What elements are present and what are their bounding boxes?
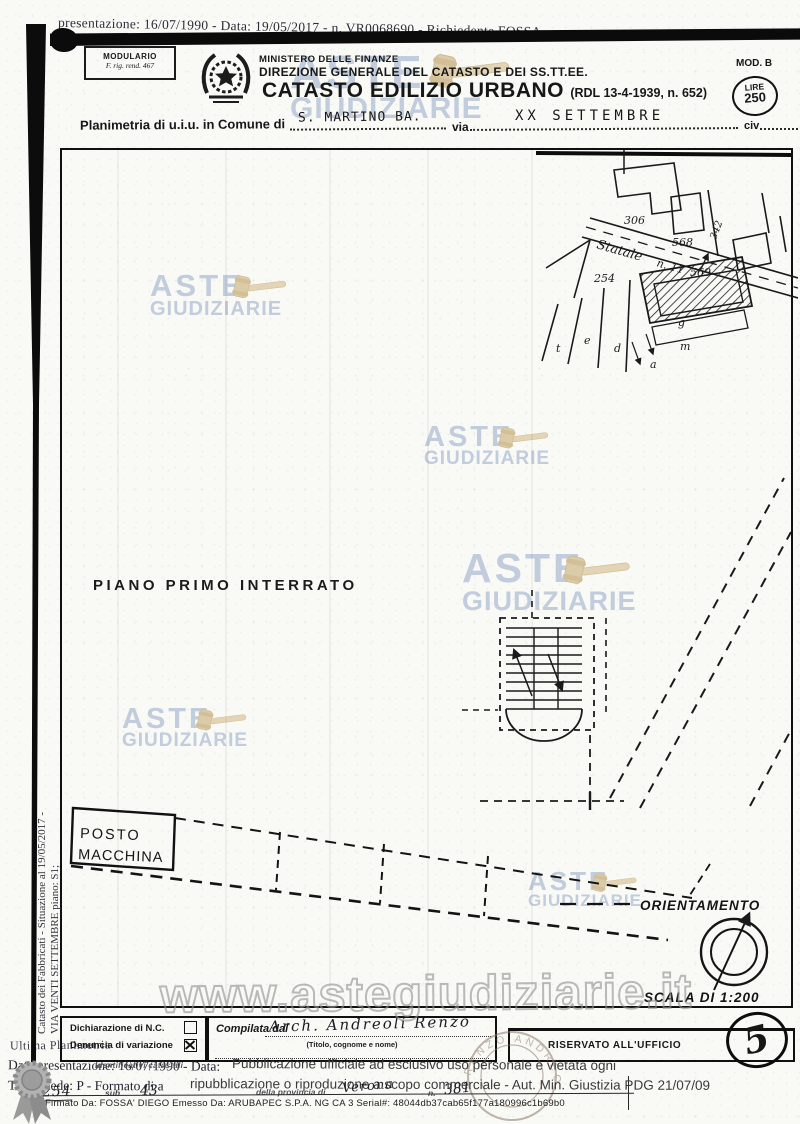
- letter-m: m: [680, 340, 690, 353]
- civ-dotted-line: [760, 114, 798, 130]
- footer-tick-right: [628, 1076, 629, 1110]
- footer-publication-line1: Pubblicazione ufficiale ad esclusivo uso…: [232, 1056, 616, 1073]
- footer-sub-value: 43: [140, 1083, 158, 1100]
- footer-province-label: della provincia di: [256, 1087, 325, 1097]
- parcel-306: 306: [624, 214, 645, 227]
- parcel-254: 254: [593, 272, 615, 285]
- parking-label-line1: POSTO: [80, 826, 141, 844]
- via-value: XX SETTEMBRE: [515, 108, 664, 124]
- title-suffix: (RDL 13-4-1939, n. 652): [570, 86, 707, 100]
- scanned-cadastral-document: presentazione: 16/07/1990 - Data: 19/05/…: [0, 0, 800, 1124]
- road-name-label: Statale: [595, 237, 644, 264]
- variation-label: Denuncia di variazione: [70, 1040, 173, 1051]
- mod-b-label: MOD. B: [736, 58, 772, 69]
- footer-sub-label: sub: [105, 1088, 120, 1098]
- letter-g: g: [678, 316, 685, 329]
- letter-e: e: [584, 334, 591, 347]
- modulario-line2: F. rig. rend. 467: [86, 61, 174, 70]
- footer-identificativi: Identificativi catastali: [95, 1061, 183, 1070]
- floor-label: PIANO PRIMO INTERRATO: [93, 577, 358, 594]
- frame-heavy-top-line: [536, 153, 791, 155]
- site-plan-inset: Statale n. 11 306 568 342 569 254 t e d …: [540, 156, 798, 398]
- letter-t: t: [556, 342, 561, 355]
- title-main: CATASTO EDILIZIO URBANO: [262, 79, 564, 102]
- watermark-url: www.astegiudiziarie.it: [160, 964, 693, 1025]
- vertical-line2: VIA VENTI SETTEMBRE piano: S1;: [49, 564, 62, 1034]
- parking-row-drawing: POSTO MACCHINA: [71, 808, 692, 940]
- parcel-569: 569: [690, 266, 711, 279]
- ministry-line1: MINISTERO DELLE FINANZE: [259, 54, 399, 65]
- declaration-label: Dichiarazione di N.C.: [70, 1023, 165, 1034]
- lire-value: 250: [734, 90, 777, 106]
- modulario-box: MODULARIO F. rig. rend. 467: [84, 46, 176, 80]
- scan-black-band-left: [24, 24, 48, 1064]
- staircase-drawing: [462, 590, 606, 741]
- document-title: CATASTO EDILIZIO URBANO (RDL 13-4-1939, …: [262, 79, 707, 103]
- footer-signature-line: Firmato Da: FOSSA' DIEGO Emesso Da: ARUB…: [45, 1098, 565, 1109]
- parcel-342: 342: [708, 219, 725, 241]
- planimetria-label: Planimetria di u.i.u. in Comune di: [80, 116, 285, 132]
- footer-n-value: 381: [443, 1080, 471, 1099]
- compass-icon: [701, 914, 767, 990]
- office-number-circle: 5: [722, 1008, 791, 1072]
- variation-checkbox-checked: [184, 1039, 197, 1052]
- comune-value: S. MARTINO BA.: [298, 109, 422, 125]
- letter-a: a: [650, 358, 657, 371]
- lire-stamp: LIRE 250: [731, 74, 780, 117]
- letter-d: d: [614, 342, 621, 355]
- ribbon-rosette-icon: [6, 1056, 58, 1124]
- parcel-568: 568: [672, 236, 693, 249]
- civ-label: civ: [744, 120, 759, 132]
- ramp-drawing: [480, 478, 791, 810]
- italy-emblem-icon: [199, 49, 253, 107]
- modulario-line1: MODULARIO: [86, 52, 174, 61]
- office-number: 5: [740, 1017, 774, 1064]
- orientation-label: ORIENTAMENTO: [640, 898, 760, 913]
- via-label: via: [452, 120, 469, 134]
- parking-label-line2: MACCHINA: [78, 847, 164, 866]
- scan-black-blob: [50, 28, 78, 52]
- ministry-line2: DIREZIONE GENERALE DEL CATASTO E DEI SS.…: [259, 65, 588, 79]
